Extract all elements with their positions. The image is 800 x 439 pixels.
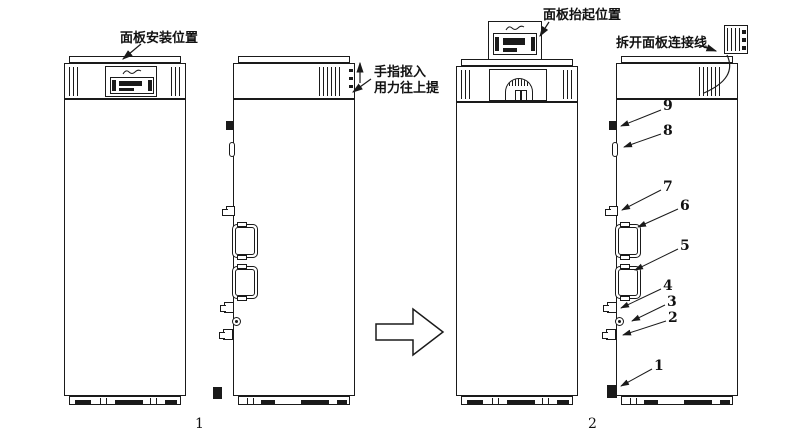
leader-panel-install	[123, 44, 141, 59]
callout-line-3	[632, 305, 665, 321]
callout-line-8	[624, 134, 661, 147]
label-finger-pull-line2: 用力往上提	[374, 81, 439, 96]
callout-number-3: 3	[667, 295, 677, 309]
callout-line-7	[622, 190, 661, 210]
leader-finger-pull	[353, 79, 371, 92]
callout-number-8: 8	[663, 124, 673, 138]
callout-number-1: 1	[654, 359, 664, 373]
figure-number-2: 2	[588, 416, 597, 432]
callout-number-6: 6	[680, 199, 690, 213]
label-disconnect-panel-wire: 拆开面板连接线	[616, 36, 707, 51]
callout-number-5: 5	[680, 239, 690, 253]
instruction-diagram: 面板安装位置 手指抠入 用力往上提 面板抬起位置 拆开面板连接线 1 2 9 8…	[0, 0, 800, 439]
callout-line-4	[621, 289, 661, 308]
label-panel-lift-position: 面板抬起位置	[543, 8, 621, 23]
transition-arrow-icon	[376, 309, 443, 355]
callout-line-6	[638, 209, 678, 227]
callout-number-4: 4	[663, 279, 673, 293]
callout-line-9	[621, 110, 661, 126]
label-panel-install-position: 面板安装位置	[120, 31, 198, 46]
panel-connection-wire	[704, 55, 730, 93]
callout-line-1	[621, 369, 652, 386]
figure-number-1: 1	[195, 416, 204, 432]
callout-line-2	[623, 321, 666, 335]
callout-line-5	[635, 249, 678, 270]
callout-number-2: 2	[668, 311, 678, 325]
callout-number-7: 7	[663, 180, 673, 194]
callout-number-9: 9	[663, 99, 673, 113]
leader-panel-lift	[540, 22, 549, 36]
label-finger-pull-line1: 手指抠入	[374, 65, 426, 80]
